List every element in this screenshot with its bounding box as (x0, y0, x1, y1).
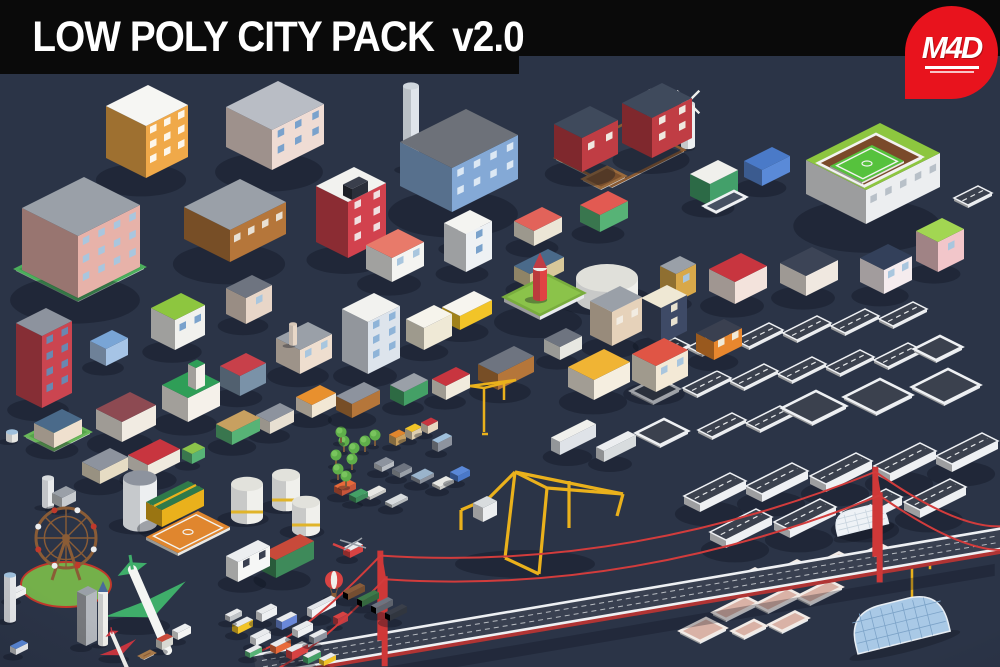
asset-house-green (572, 191, 628, 244)
asset-church-green-roof (153, 369, 220, 436)
road-tile (912, 369, 980, 406)
road-tile (954, 186, 992, 208)
sidewalk-tile (732, 620, 766, 640)
asset-train-highspeed (300, 596, 336, 626)
asset-warehouse-blue (736, 147, 790, 197)
asset-boat-small (3, 640, 28, 661)
road-tile (698, 413, 746, 440)
asset-tunnel-glass (839, 588, 962, 666)
asset-mall-tower (333, 293, 400, 388)
asset-motel-brick (469, 346, 534, 403)
asset-factory-cream (267, 322, 332, 387)
road-tile (735, 323, 783, 350)
sidewalk-tile (769, 612, 808, 635)
asset-canoe (140, 651, 154, 660)
asset-oil-tank-large (217, 477, 268, 527)
asset-helicopter (333, 538, 366, 564)
brand-logo-text: M4D (922, 32, 981, 63)
asset-port-crane (455, 472, 623, 578)
scene-render (0, 0, 1000, 667)
asset-school-brick (173, 179, 286, 284)
asset-cruise-ship (218, 540, 270, 593)
asset-house-navy-roof (851, 244, 912, 306)
road-tile (783, 316, 831, 343)
asset-shop-blue (82, 330, 128, 376)
highway-tile (801, 453, 872, 506)
brand-logo-subline (930, 71, 974, 73)
road-tile (826, 350, 874, 377)
asset-barn-red-small (545, 106, 618, 187)
asset-apartment-orange (96, 85, 188, 196)
asset-barn-red-large (613, 83, 693, 174)
asset-shop-orange-awning (288, 385, 336, 428)
promo-image: LOW POLY CITY PACKv2.0 M4D (0, 0, 1000, 667)
pack-title: LOW POLY CITY PACKv2.0 (0, 16, 524, 59)
asset-school-white (215, 81, 324, 192)
road-tile (831, 309, 879, 336)
asset-warehouse-tan (74, 448, 128, 495)
street-prop (367, 457, 394, 478)
road-tile (874, 343, 922, 370)
asset-church-steeple (188, 360, 205, 391)
asset-diner-red-roof (424, 367, 470, 410)
asset-fountain (0, 429, 18, 445)
asset-apartment-pink (10, 177, 140, 324)
road-tile (683, 371, 731, 398)
asset-ferris-wheel (21, 507, 111, 607)
tree (344, 454, 358, 474)
road-tile (914, 336, 962, 363)
street-prop (378, 494, 408, 515)
asset-shops-green-row (208, 410, 260, 456)
brand-logo-underline (925, 66, 979, 69)
road-tile (778, 357, 826, 384)
asset-tower-white (0, 572, 16, 625)
asset-kiosk-yellow-roof (398, 305, 452, 361)
asset-houses-gray-roof (771, 247, 838, 310)
asset-house-red-roof (700, 253, 767, 318)
road-tile (844, 379, 912, 416)
asset-refinery-column (34, 475, 54, 511)
highway-tile (927, 433, 998, 486)
asset-footbridge (543, 420, 596, 467)
asset-eco-roof-building (142, 293, 205, 363)
brand-logo: M4D (905, 6, 998, 99)
pack-title-text: LOW POLY CITY PACK (32, 13, 434, 61)
road-tile (730, 364, 778, 391)
road-tile (636, 419, 688, 448)
road-tile (782, 391, 846, 426)
asset-tower-red (7, 308, 72, 421)
title-banner: LOW POLY CITY PACKv2.0 (0, 0, 519, 74)
pack-version: v2.0 (452, 13, 524, 61)
vehicle (249, 604, 277, 629)
